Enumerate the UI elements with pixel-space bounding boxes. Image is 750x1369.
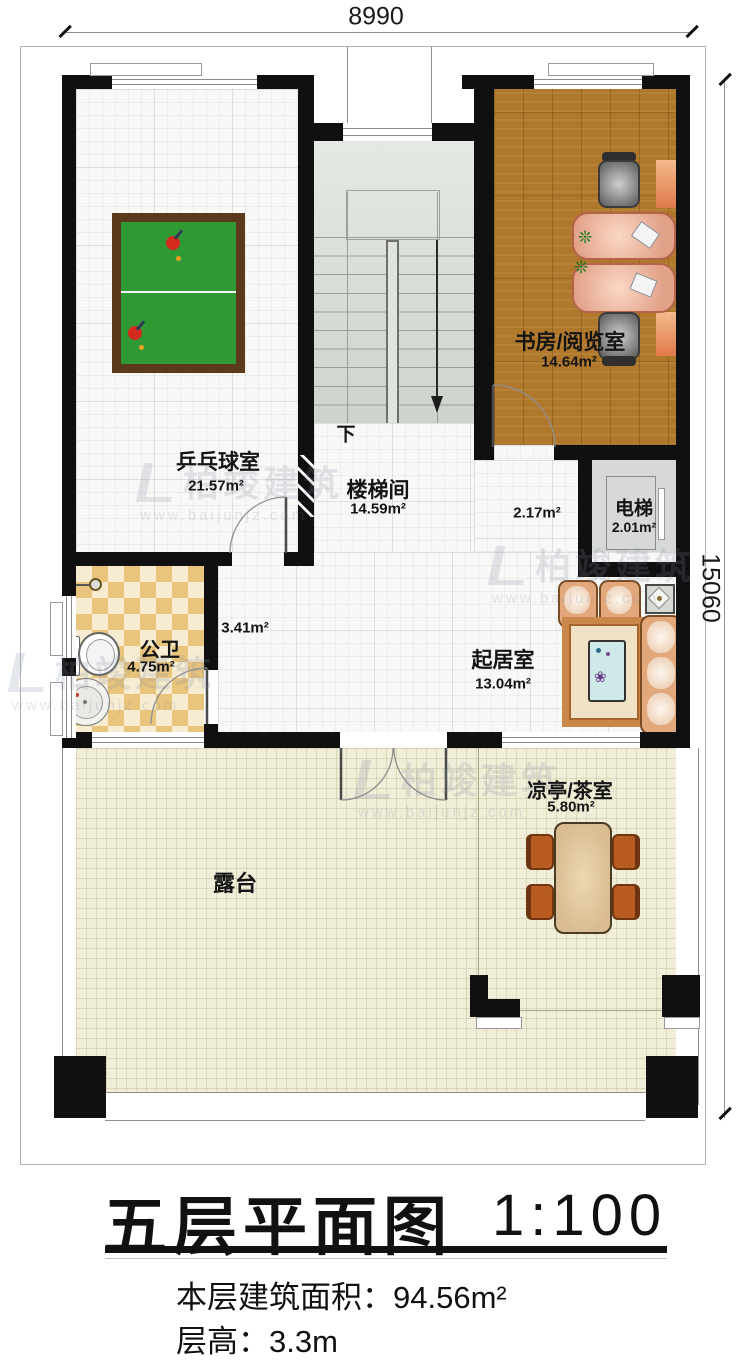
- dimension-label-right: 15060: [696, 553, 725, 623]
- room-area-bathroom: 4.75m²: [127, 659, 175, 676]
- floor-area-text: 本层建筑面积：94.56m²: [176, 1272, 507, 1317]
- room-area-living: 13.04m²: [475, 676, 531, 693]
- watermark: 柏竣建筑 www.baijunjz.com: [492, 538, 695, 607]
- room-area-pingpong: 21.57m²: [188, 478, 244, 495]
- watermark-logo-icon: [488, 546, 531, 585]
- watermark-url: www.baijunjz.com: [492, 590, 695, 607]
- room-label-study: 书房/阅览室: [515, 326, 626, 356]
- drawing-title: 五层平面图: [103, 1176, 453, 1268]
- room-label-living: 起居室: [472, 644, 535, 674]
- dimension-line-top: [65, 32, 692, 33]
- floor-height-text: 层高：3.3m: [176, 1316, 338, 1361]
- room-area-stairwell: 14.59m²: [350, 501, 406, 518]
- watermark-name: 柏竣建筑: [535, 546, 695, 587]
- watermark-url: www.baijunjz.com: [358, 804, 561, 821]
- room-label-pingpong: 乒乓球室: [176, 446, 260, 476]
- floor-plan: ❊ ❊ ❀: [0, 0, 750, 1369]
- watermark-logo-icon: [136, 463, 179, 502]
- watermark-url: www.baijunjz.com: [12, 697, 215, 714]
- watermark: 柏竣建筑 www.baijunjz.com: [12, 645, 215, 714]
- watermark-logo-icon: [8, 653, 51, 692]
- room-area-study: 14.64m²: [541, 354, 597, 371]
- room-area-tearoom: 5.80m²: [547, 799, 595, 816]
- watermark-logo-icon: [354, 760, 397, 799]
- room-area-elevator: 2.01m²: [612, 519, 656, 535]
- dimension-label-top: 8990: [348, 3, 404, 32]
- door-arc: [493, 385, 555, 447]
- hall-area-upper: 2.17m²: [513, 505, 561, 522]
- room-label-stairwell: 楼梯间: [347, 474, 410, 504]
- room-label-elevator: 电梯: [615, 494, 653, 521]
- title-underline: [105, 1246, 667, 1253]
- title-underline-thin: [105, 1258, 667, 1259]
- room-label-terrace: 露台: [213, 866, 257, 898]
- stair-direction-label: 下: [336, 420, 355, 447]
- hall-area-lower: 3.41m²: [221, 620, 269, 637]
- drawing-scale: 1:100: [492, 1182, 667, 1249]
- watermark-url: www.baijunjz.com: [140, 507, 343, 524]
